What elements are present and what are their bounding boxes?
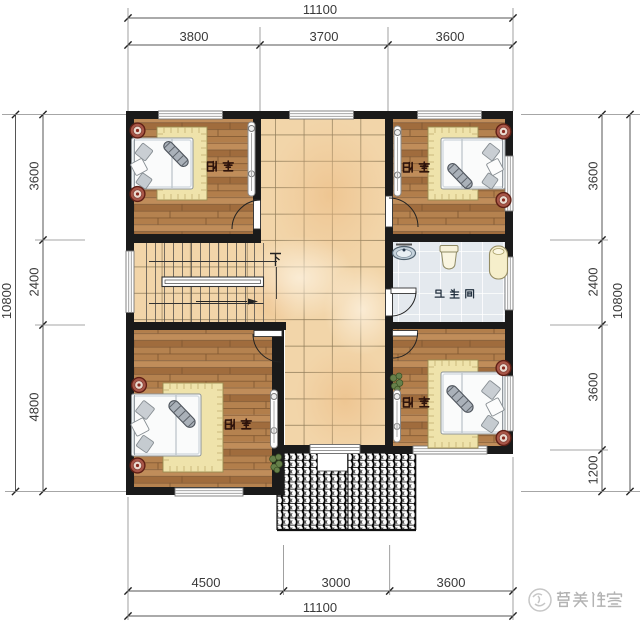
svg-text:2400: 2400 bbox=[586, 268, 601, 297]
svg-text:10800: 10800 bbox=[0, 283, 14, 319]
svg-text:3600: 3600 bbox=[586, 373, 601, 402]
svg-text:3000: 3000 bbox=[322, 575, 351, 590]
svg-text:3600: 3600 bbox=[27, 162, 42, 191]
svg-text:4800: 4800 bbox=[27, 393, 42, 422]
svg-text:11100: 11100 bbox=[303, 2, 337, 17]
svg-text:4500: 4500 bbox=[192, 575, 221, 590]
svg-text:3800: 3800 bbox=[180, 29, 209, 44]
svg-text:10800: 10800 bbox=[610, 283, 625, 319]
svg-text:3600: 3600 bbox=[436, 29, 465, 44]
svg-text:3600: 3600 bbox=[586, 162, 601, 191]
svg-text:1200: 1200 bbox=[586, 456, 601, 485]
svg-text:3700: 3700 bbox=[310, 29, 339, 44]
svg-text:11100: 11100 bbox=[303, 600, 337, 615]
svg-text:3600: 3600 bbox=[437, 575, 466, 590]
svg-text:2400: 2400 bbox=[27, 268, 42, 297]
